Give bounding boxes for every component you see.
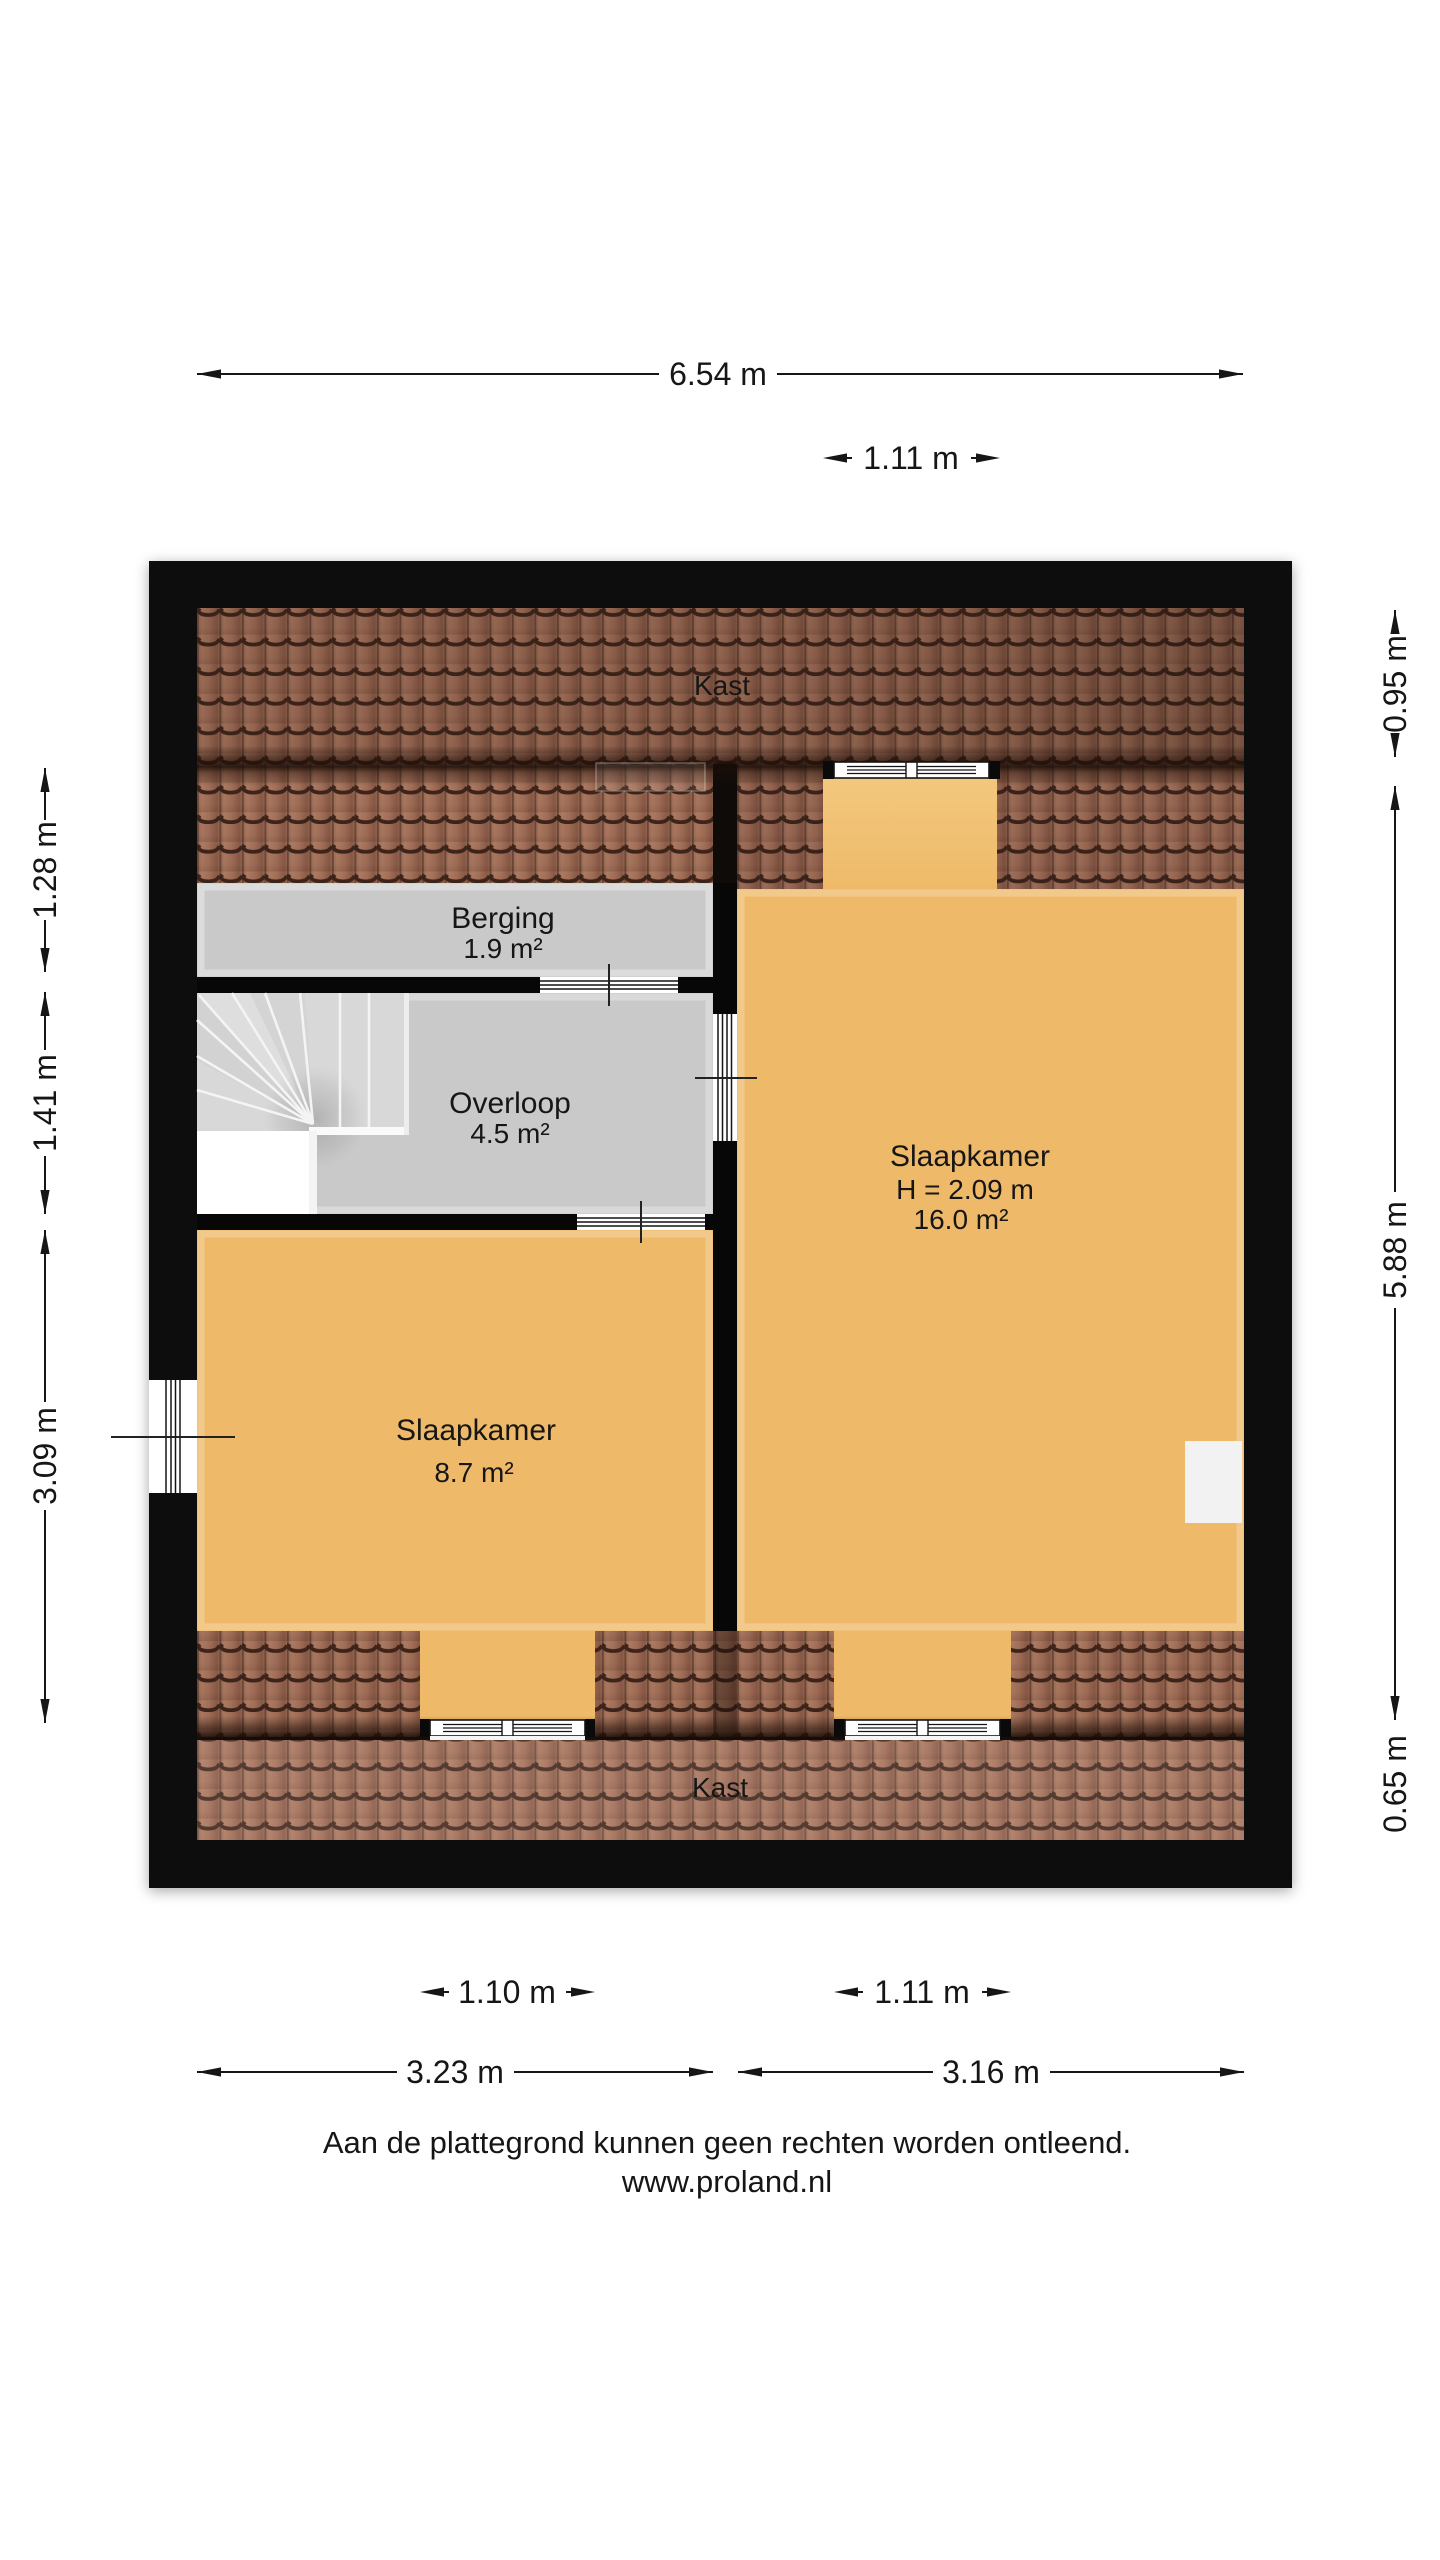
svg-text:3.23 m: 3.23 m — [406, 2054, 504, 2090]
svg-text:0.95 m: 0.95 m — [1377, 635, 1413, 733]
svg-text:H = 2.09 m: H = 2.09 m — [896, 1174, 1034, 1205]
svg-text:1.10 m: 1.10 m — [458, 1974, 556, 2010]
svg-text:1.11 m: 1.11 m — [874, 1974, 969, 2010]
svg-text:Slaapkamer: Slaapkamer — [890, 1140, 1050, 1173]
svg-text:Slaapkamer: Slaapkamer — [396, 1414, 556, 1447]
svg-text:3.16 m: 3.16 m — [942, 2054, 1040, 2090]
svg-text:4.5 m²: 4.5 m² — [470, 1118, 549, 1149]
svg-text:Kast: Kast — [692, 1772, 748, 1803]
svg-text:5.88 m: 5.88 m — [1377, 1201, 1413, 1299]
svg-text:1.28 m: 1.28 m — [27, 821, 63, 919]
svg-text:3.09 m: 3.09 m — [27, 1407, 63, 1505]
svg-text:1.11 m: 1.11 m — [863, 440, 958, 476]
svg-text:Kast: Kast — [694, 670, 750, 701]
svg-text:6.54 m: 6.54 m — [669, 356, 767, 392]
svg-text:Overloop: Overloop — [449, 1087, 571, 1120]
svg-text:8.7 m²: 8.7 m² — [434, 1457, 513, 1488]
svg-text:1.9 m²: 1.9 m² — [463, 933, 542, 964]
svg-text:1.41 m: 1.41 m — [27, 1054, 63, 1152]
svg-text:www.proland.nl: www.proland.nl — [621, 2164, 832, 2199]
svg-text:Berging: Berging — [451, 902, 554, 935]
svg-text:16.0 m²: 16.0 m² — [914, 1204, 1009, 1235]
svg-text:0.65 m: 0.65 m — [1377, 1735, 1413, 1833]
svg-text:Aan de plattegrond kunnen geen: Aan de plattegrond kunnen geen rechten w… — [323, 2125, 1131, 2160]
